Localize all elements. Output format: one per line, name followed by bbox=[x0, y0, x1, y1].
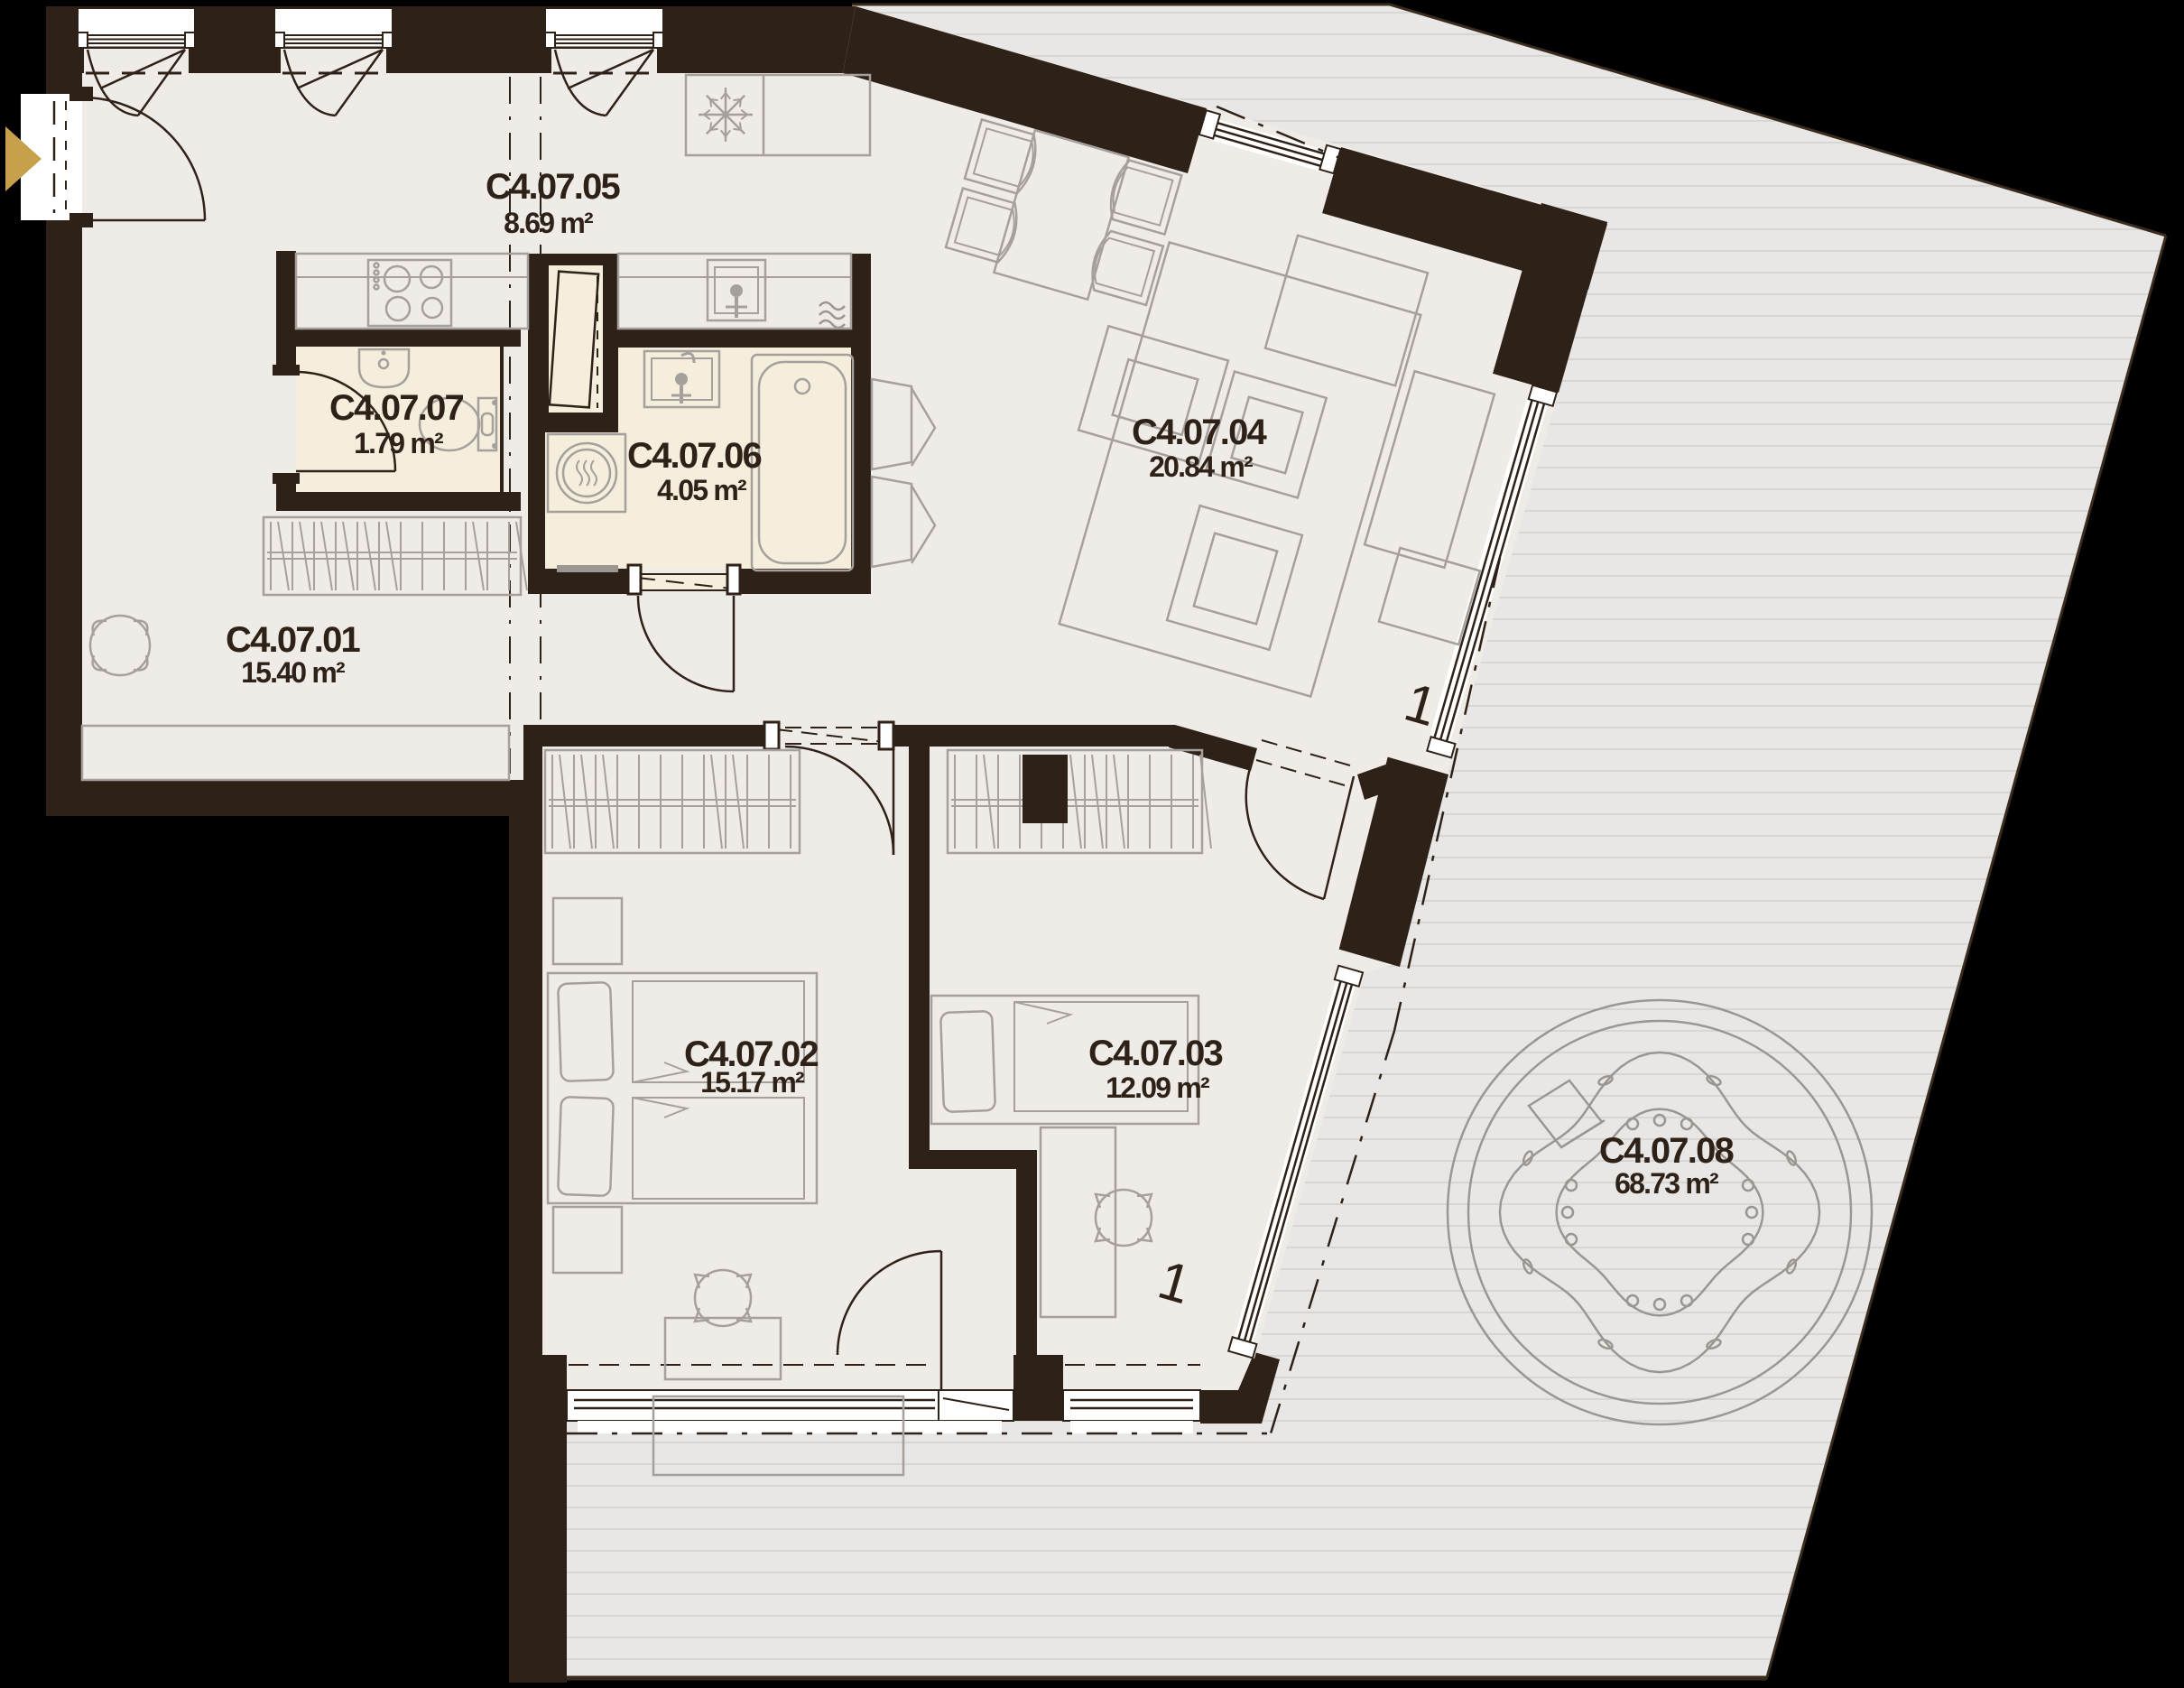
svg-text:8.69 m²: 8.69 m² bbox=[504, 207, 593, 239]
svg-text:12.09 m²: 12.09 m² bbox=[1106, 1071, 1209, 1104]
svg-text:20.84 m²: 20.84 m² bbox=[1149, 450, 1253, 483]
svg-text:C4.07.07: C4.07.07 bbox=[329, 388, 463, 428]
svg-text:1.79 m²: 1.79 m² bbox=[354, 427, 443, 459]
svg-text:15.17 m²: 15.17 m² bbox=[700, 1066, 804, 1099]
svg-text:4.05 m²: 4.05 m² bbox=[657, 474, 746, 506]
svg-text:C4.07.08: C4.07.08 bbox=[1599, 1131, 1734, 1171]
svg-text:15.40 m²: 15.40 m² bbox=[241, 656, 345, 689]
svg-text:C4.07.04: C4.07.04 bbox=[1132, 413, 1267, 452]
svg-text:C4.07.05: C4.07.05 bbox=[486, 167, 620, 207]
svg-text:C4.07.03: C4.07.03 bbox=[1088, 1034, 1222, 1073]
svg-text:C4.07.06: C4.07.06 bbox=[627, 436, 761, 476]
svg-text:68.73 m²: 68.73 m² bbox=[1615, 1167, 1718, 1200]
svg-text:C4.07.01: C4.07.01 bbox=[226, 620, 360, 660]
